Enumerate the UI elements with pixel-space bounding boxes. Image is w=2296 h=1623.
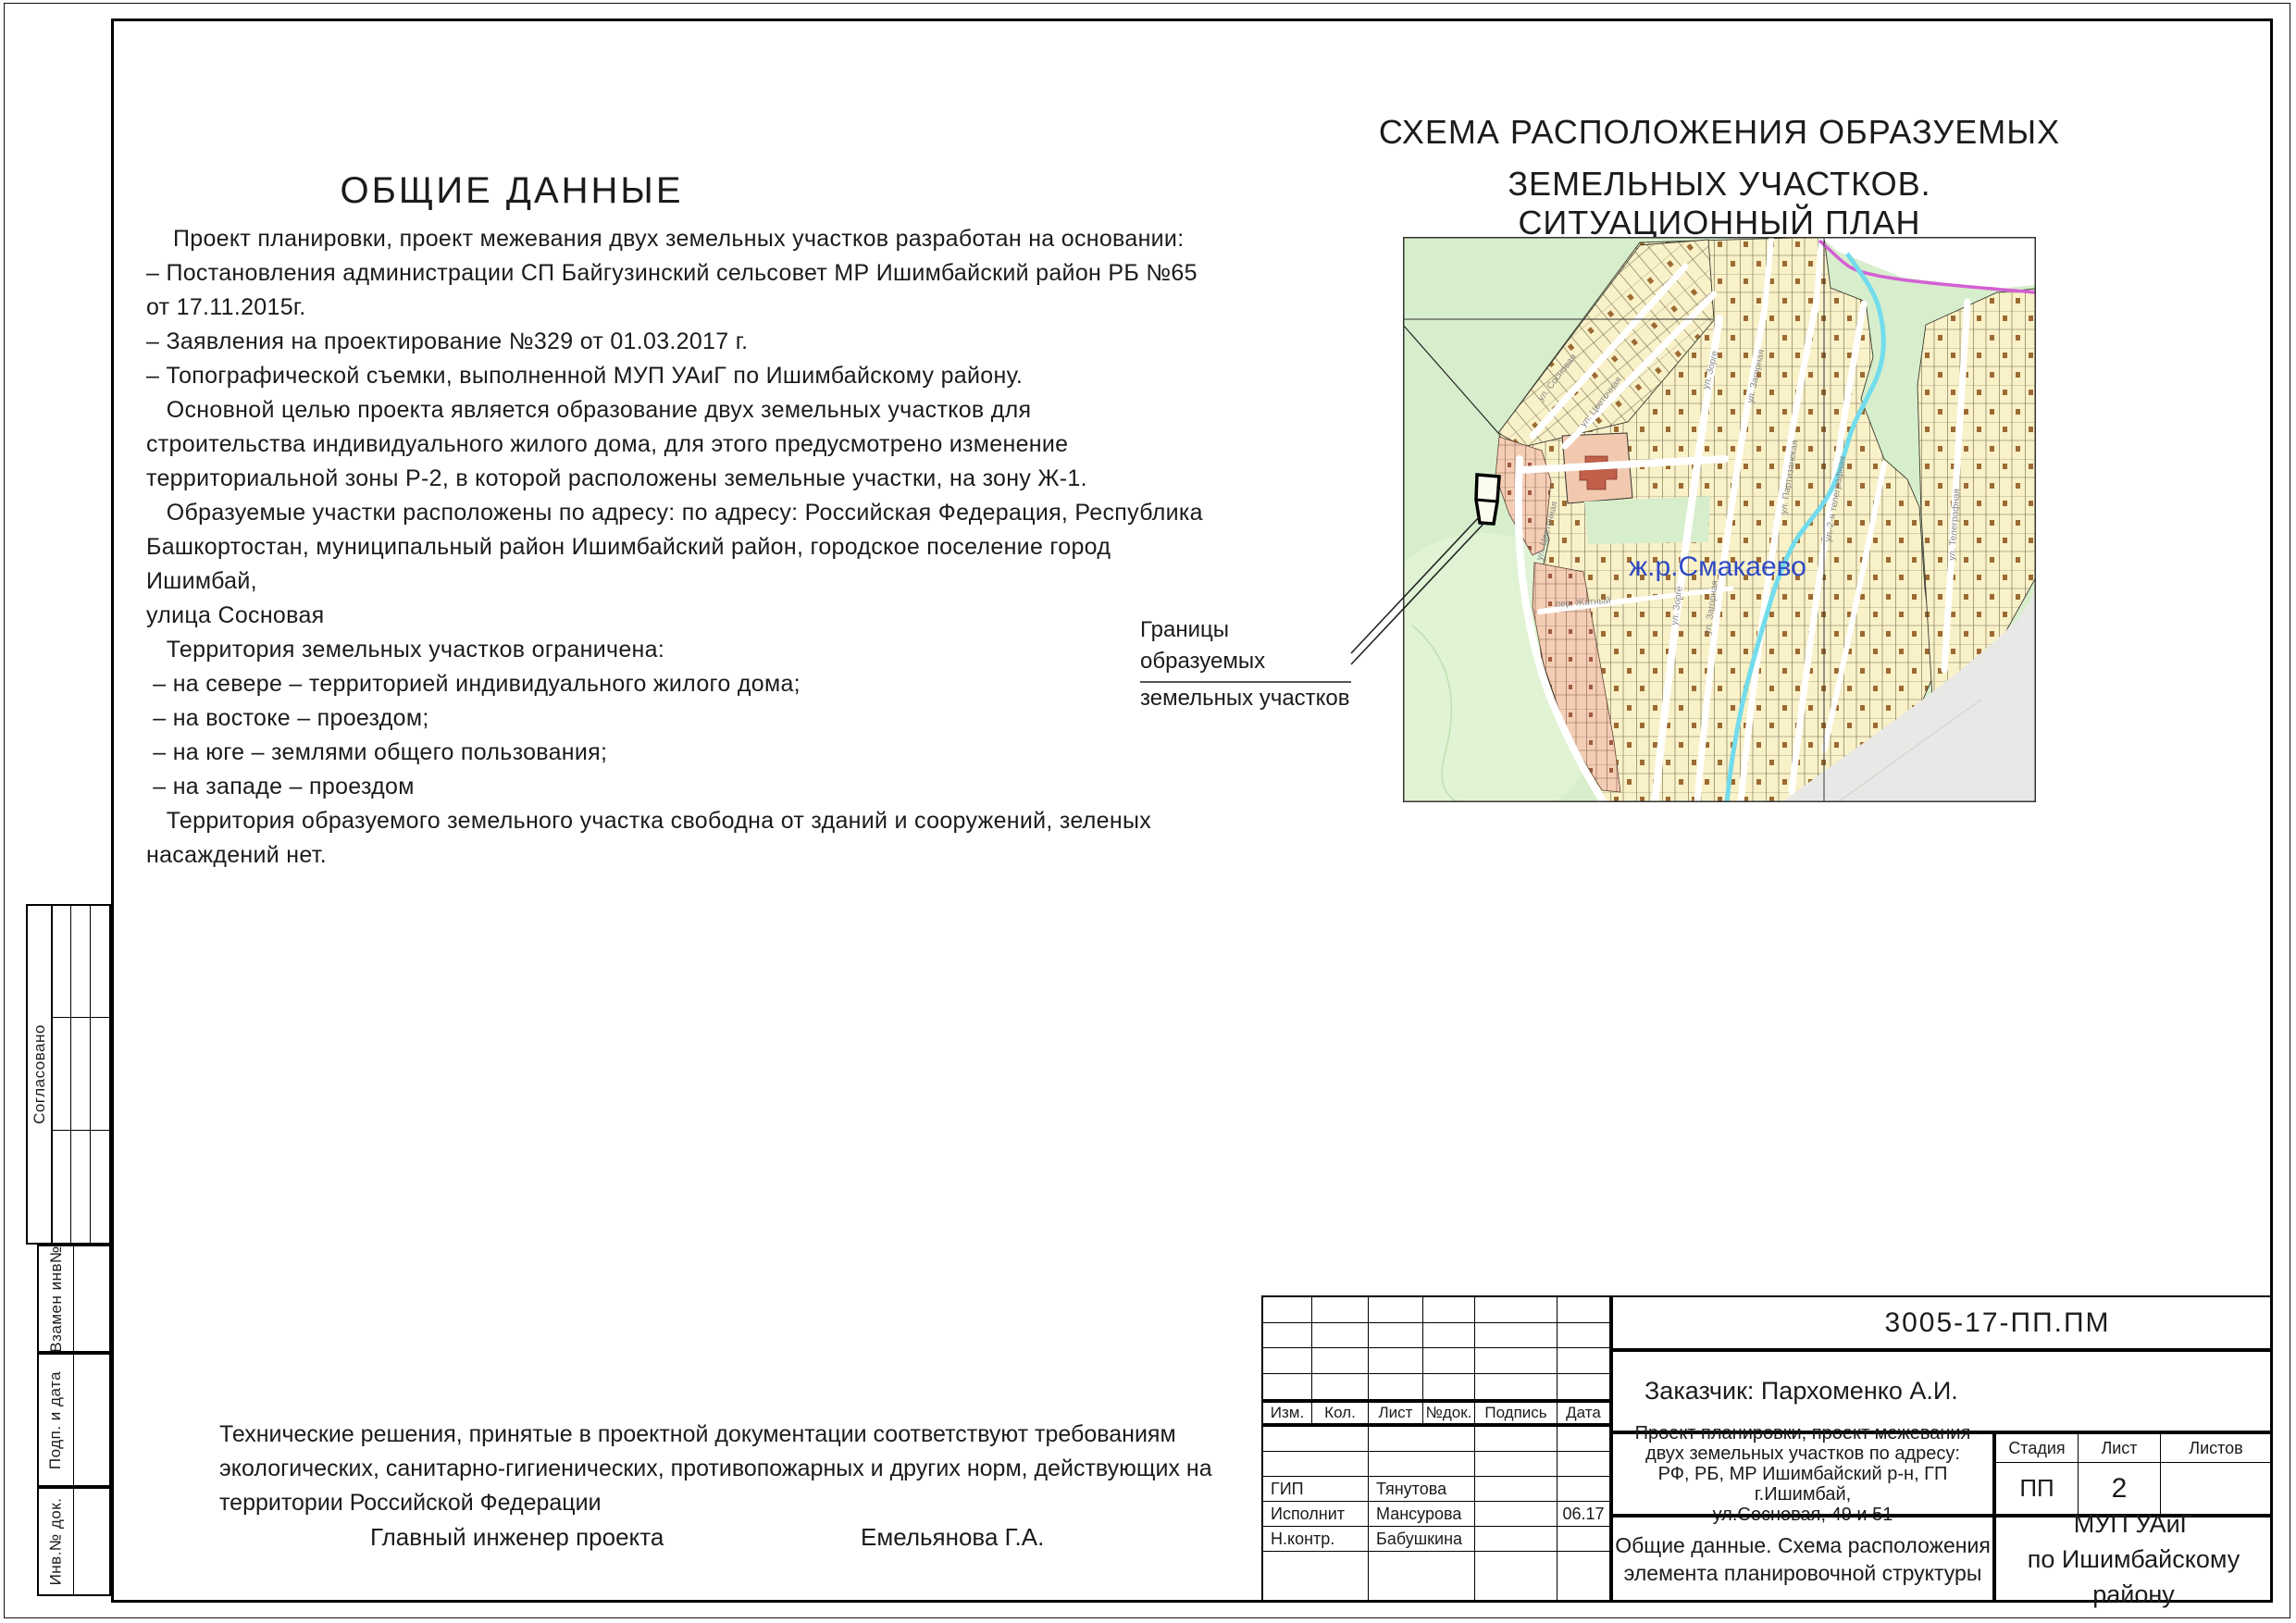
staff-signature [1475,1527,1558,1552]
doc-number: 3005-17-ПП.ПМ [1884,1307,2110,1339]
rev-header-list: Лист [1369,1403,1423,1423]
sheet-title-line: Общие данные. Схема расположения [1615,1531,1991,1559]
parcel-boundaries-callout: Границы образуемых земельных участков [1140,614,1351,714]
staff-role: Н.контр. [1263,1527,1369,1552]
rev-header-data: Дата [1558,1403,1609,1423]
signature-name: Емельянова Г.А. [861,1523,1044,1552]
replaced-inv-cell: Взамен инв№ [37,1245,111,1353]
staff-role: Исполнит [1263,1502,1369,1527]
organization-line: МУП УАиГ [2074,1506,2194,1542]
staff-signature [1475,1477,1558,1502]
drawing-sheet: Согласовано Взамен инв№ Подп. и дата Инв… [0,0,2296,1623]
staff-signature [1475,1502,1558,1527]
staff-grid: ГИП Тянутова Исполнит Мансурова 06.17 Н.… [1261,1425,1611,1603]
rev-header-podpis: Подпись [1475,1403,1558,1423]
organization-cell: МУП УАиГ по Ишимбайскому району [1994,1516,2273,1603]
inv-doc-cell: Инв.№ док. [37,1487,111,1596]
doc-number-cell: 3005-17-ПП.ПМ [1611,1295,2273,1350]
signature-role: Главный инженер проекта [370,1523,664,1552]
organization-line: по Ишимбайскому району [1996,1542,2271,1612]
callout-line1: Границы образуемых [1140,614,1351,683]
formed-parcels-outline [1476,475,1499,524]
staff-role: ГИП [1263,1477,1369,1502]
stage-label: Стадия [1996,1434,2079,1463]
district-label: ж.р.Смакаево [1629,551,1806,582]
callout-line2: земельных участков [1140,683,1351,714]
project-name-cell: Проект планировки, проект межевания двух… [1611,1432,1994,1516]
approval-grid [53,906,109,1243]
staff-date [1558,1527,1609,1552]
replaced-inv-label: Взамен инв№ [47,1245,66,1353]
rev-header-kol: Кол. [1312,1403,1369,1423]
approved-label: Согласовано [31,1024,49,1124]
staff-date: 06.17 [1558,1502,1609,1527]
inv-doc-label: Инв.№ док. [47,1498,66,1586]
situational-map: ул. Сосновая ул. Цветочная ул. Зорге ул.… [1403,237,2036,802]
sign-date-label: Подп. и дата [47,1370,66,1468]
sheet-title-cell: Общие данные. Схема расположения элемент… [1611,1516,1994,1603]
staff-name: Мансурова [1369,1502,1475,1527]
rev-header-ndoc: №док. [1423,1403,1475,1423]
scheme-title-line1: СХЕМА РАСПОЛОЖЕНИЯ ОБРАЗУЕМЫХ [1368,113,2071,152]
staff-name: Бабушкина [1369,1527,1475,1552]
scheme-title-line2: ЗЕМЕЛЬНЫХ УЧАСТКОВ. СИТУАЦИОННЫЙ ПЛАН [1368,165,2071,242]
sheet-label: Лист [2079,1434,2161,1463]
customer-cell: Заказчик: Пархоменко А.И. [1611,1350,2273,1432]
approval-stamp-table: Согласовано [26,904,111,1245]
sheet-title-line: элемента планировочной структуры [1624,1559,1982,1587]
project-name-line: двух земельных участков по адресу: [1645,1443,1960,1464]
rev-header-izm: Изм. [1263,1403,1312,1423]
project-name-line: Проект планировки, проект межевания [1635,1423,1971,1443]
revision-header-row: Изм. Кол. Лист №док. Подпись Дата [1261,1401,1611,1425]
technical-note: Технические решения, принятые в проектно… [219,1418,1237,1520]
customer: Заказчик: Пархоменко А.И. [1644,1377,1958,1406]
staff-name: Тянутова [1369,1477,1475,1502]
project-name-line: РФ, РБ, МР Ишимбайский р-н, ГП г.Ишимбай… [1613,1464,1992,1505]
general-data-body: Проект планировки, проект межевания двух… [146,222,1210,873]
stage-sheet-grid: Стадия Лист Листов ПП 2 [1994,1432,2273,1516]
stage-value: ПП [1996,1463,2079,1514]
sheets-label: Листов [2161,1434,2271,1463]
sign-date-cell: Подп. и дата [37,1353,111,1487]
revision-grid [1261,1295,1611,1401]
approved-label-cell: Согласовано [28,906,53,1243]
staff-date [1558,1477,1609,1502]
general-data-heading: ОБЩИЕ ДАННЫЕ [146,170,877,212]
